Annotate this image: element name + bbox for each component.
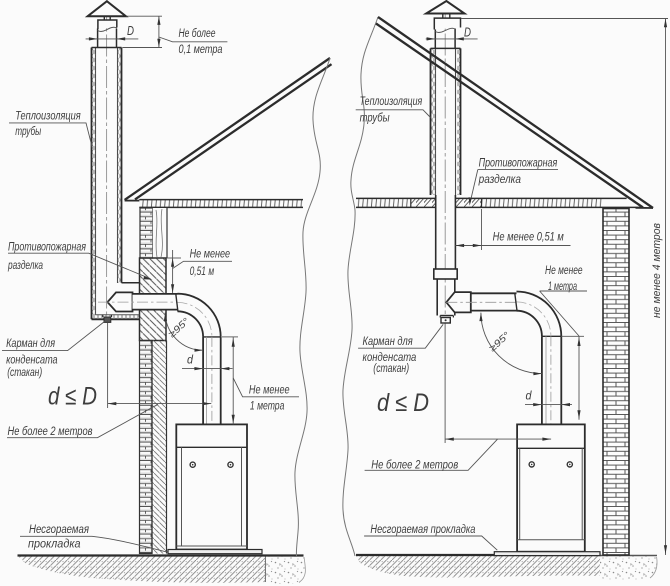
- svg-text:1 метра: 1 метра: [250, 400, 285, 412]
- svg-text:Несгораемая: Несгораемая: [29, 524, 89, 536]
- svg-text:D: D: [127, 23, 134, 38]
- svg-text:разделка: разделка: [7, 260, 43, 272]
- svg-text:d ≤ D: d ≤ D: [377, 389, 429, 417]
- svg-text:d: d: [526, 391, 533, 403]
- svg-text:0,51 м: 0,51 м: [190, 266, 215, 278]
- svg-text:не менее 4 метров: не менее 4 метров: [651, 223, 663, 318]
- svg-text:конденсата: конденсата: [6, 355, 58, 367]
- svg-text:Карман для: Карман для: [6, 338, 55, 350]
- svg-text:трубы: трубы: [360, 113, 390, 125]
- svg-text:d ≤ D: d ≤ D: [48, 383, 97, 411]
- svg-text:D: D: [464, 25, 471, 40]
- svg-text:d: d: [187, 355, 194, 367]
- svg-text:Не более 2 метров: Не более 2 метров: [371, 459, 458, 471]
- svg-text:1 метра: 1 метра: [548, 281, 577, 293]
- svg-text:Не менее 0,51 м: Не менее 0,51 м: [493, 232, 564, 244]
- svg-text:Противопожарная: Противопожарная: [479, 158, 558, 170]
- svg-text:Не менее: Не менее: [190, 249, 231, 261]
- svg-text:Теплоизоляция: Теплоизоляция: [15, 111, 81, 123]
- svg-text:разделка: разделка: [478, 174, 521, 186]
- svg-text:трубы: трубы: [15, 126, 41, 138]
- svg-text:Теплоизоляция: Теплоизоляция: [360, 96, 423, 108]
- svg-text:(стакан): (стакан): [7, 367, 42, 379]
- svg-text:Несгораемая прокладка: Несгораемая прокладка: [370, 524, 475, 536]
- svg-text:Не менее: Не менее: [545, 265, 583, 277]
- svg-text:0,1 метра: 0,1 метра: [179, 44, 223, 56]
- svg-text:Противопожарная: Противопожарная: [8, 241, 86, 253]
- svg-text:(стакан): (стакан): [373, 363, 409, 375]
- svg-text:прокладка: прокладка: [28, 539, 81, 551]
- svg-text:Не менее: Не менее: [249, 384, 290, 396]
- svg-text:Не более: Не более: [179, 28, 216, 40]
- svg-text:Не более 2 метров: Не более 2 метров: [8, 426, 93, 438]
- svg-text:Карман для: Карман для: [363, 336, 413, 348]
